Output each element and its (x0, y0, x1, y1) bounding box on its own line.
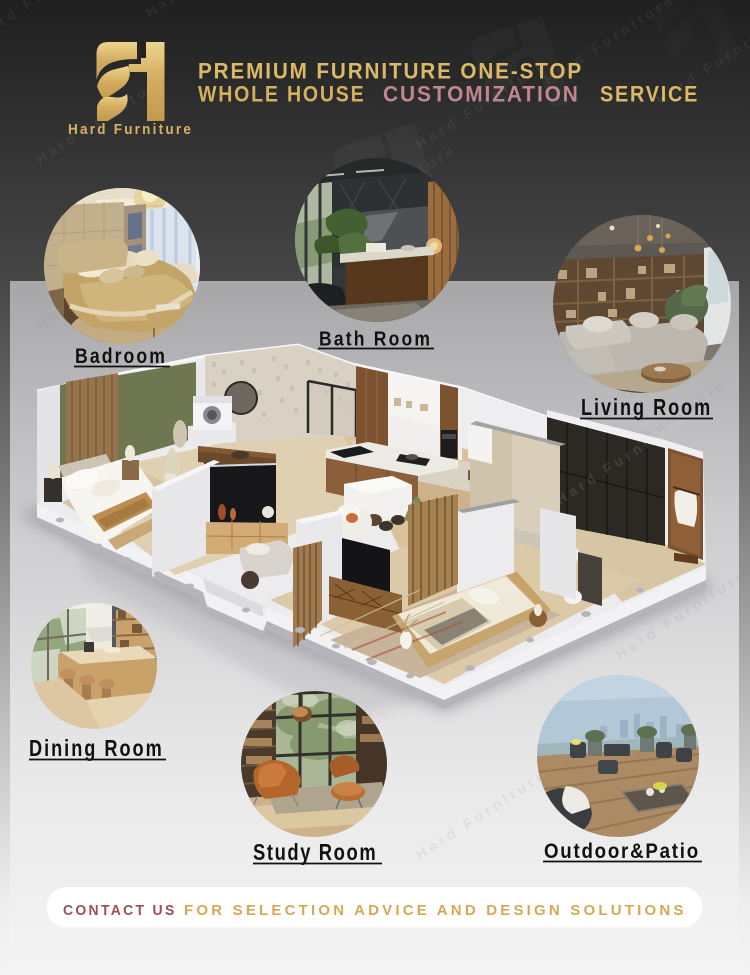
svg-text:Badroom: Badroom (75, 345, 167, 369)
svg-text:Living Room: Living Room (581, 395, 712, 421)
svg-text:FOR SELECTION ADVICE AND DESIG: FOR SELECTION ADVICE AND DESIGN SOLUTION… (184, 902, 687, 919)
svg-text:WHOLE HOUSE: WHOLE HOUSE (198, 82, 365, 106)
svg-text:PREMIUM FURNITURE ONE-STOP: PREMIUM FURNITURE ONE-STOP (198, 59, 583, 84)
svg-text:CONTACT US: CONTACT US (63, 903, 177, 920)
svg-text:CUSTOMIZATION: CUSTOMIZATION (383, 82, 580, 107)
svg-text:Bath Room: Bath Room (319, 327, 432, 349)
svg-text:Dining Room: Dining Room (29, 736, 164, 762)
svg-text:Study Room: Study Room (253, 840, 377, 865)
svg-text:SERVICE: SERVICE (600, 83, 699, 107)
svg-text:Outdoor&Patio: Outdoor&Patio (544, 840, 700, 863)
svg-text:Hard Furniture: Hard Furniture (68, 121, 193, 138)
